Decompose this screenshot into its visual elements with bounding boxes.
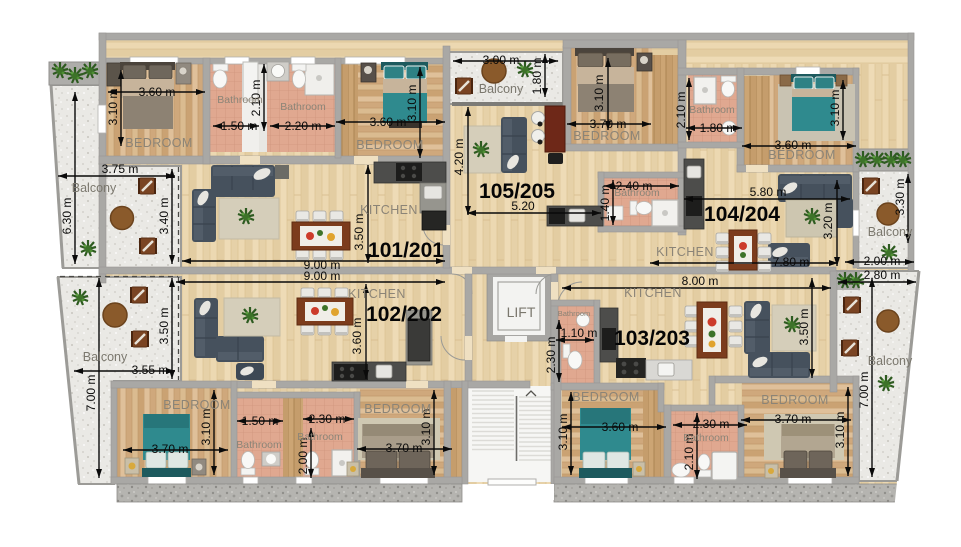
svg-text:Balcony: Balcony [479, 82, 524, 96]
svg-text:2.30 m: 2.30 m [309, 412, 346, 426]
svg-text:1.10 m: 1.10 m [561, 326, 598, 340]
svg-text:3.10 m: 3.10 m [828, 90, 842, 127]
svg-text:BEDROOM: BEDROOM [768, 148, 835, 162]
svg-text:102/202: 102/202 [366, 303, 442, 326]
svg-text:3.60 m: 3.60 m [350, 318, 364, 355]
svg-text:BEDROOM: BEDROOM [761, 393, 828, 407]
svg-text:KITCHEN: KITCHEN [360, 203, 418, 217]
svg-text:8.00 m: 8.00 m [682, 274, 719, 288]
svg-text:KITCHEN: KITCHEN [656, 245, 714, 259]
svg-text:7.00 m: 7.00 m [84, 375, 98, 412]
svg-text:1.40 m: 1.40 m [598, 185, 612, 222]
svg-text:3.50 m: 3.50 m [157, 308, 171, 345]
svg-text:3.40 m: 3.40 m [157, 198, 171, 235]
svg-text:Bathroom: Bathroom [558, 309, 591, 318]
svg-text:2.80 m: 2.80 m [864, 268, 901, 282]
svg-text:3.75 m: 3.75 m [102, 162, 139, 176]
svg-text:Balcony: Balcony [868, 225, 913, 239]
svg-text:3.10 m: 3.10 m [106, 89, 120, 126]
svg-text:104/204: 104/204 [704, 203, 780, 226]
svg-text:BEDROOM: BEDROOM [125, 136, 192, 150]
svg-text:101/201: 101/201 [368, 239, 444, 262]
svg-text:3.60 m: 3.60 m [602, 420, 639, 434]
svg-text:3.55 m: 3.55 m [132, 363, 169, 377]
svg-text:Bathroom: Bathroom [297, 431, 343, 443]
svg-text:KITCHEN: KITCHEN [624, 286, 682, 300]
svg-text:3.70 m: 3.70 m [775, 412, 812, 426]
svg-text:3.60 m: 3.60 m [139, 85, 176, 99]
svg-text:BEDROOM: BEDROOM [356, 138, 423, 152]
svg-text:BEDROOM: BEDROOM [163, 398, 230, 412]
svg-text:3.10 m: 3.10 m [199, 409, 213, 446]
svg-text:BEDROOM: BEDROOM [573, 129, 640, 143]
svg-text:105/205: 105/205 [479, 180, 555, 203]
svg-text:2.00 m: 2.00 m [864, 254, 901, 268]
svg-text:5.80 m: 5.80 m [750, 185, 787, 199]
svg-text:2.30 m: 2.30 m [693, 417, 730, 431]
svg-text:3.10 m: 3.10 m [592, 75, 606, 112]
svg-text:9.00 m: 9.00 m [304, 269, 341, 283]
svg-text:Bathroom: Bathroom [614, 187, 660, 199]
svg-text:Bathroom: Bathroom [689, 104, 735, 116]
svg-text:3.60 m: 3.60 m [370, 115, 407, 129]
svg-text:3.10 m: 3.10 m [833, 412, 847, 449]
svg-text:2.20 m: 2.20 m [285, 119, 322, 133]
svg-text:3.00 m: 3.00 m [483, 53, 520, 67]
svg-text:6.30 m: 6.30 m [60, 198, 74, 235]
svg-text:3.70 m: 3.70 m [152, 442, 189, 456]
svg-text:Balcony: Balcony [83, 350, 128, 364]
svg-text:1.50 m: 1.50 m [242, 414, 279, 428]
svg-text:2.10 m: 2.10 m [674, 92, 688, 129]
svg-text:3.50 m: 3.50 m [797, 309, 811, 346]
svg-text:BEDROOM: BEDROOM [572, 390, 639, 404]
svg-text:3.30 m: 3.30 m [893, 179, 907, 216]
svg-text:2.00 m: 2.00 m [296, 438, 310, 475]
svg-text:Bathroom: Bathroom [683, 432, 729, 444]
svg-text:Balcony: Balcony [72, 181, 117, 195]
svg-text:Bathroom: Bathroom [280, 101, 326, 113]
svg-text:3.10 m: 3.10 m [405, 85, 419, 122]
svg-text:BEDROOM: BEDROOM [364, 402, 431, 416]
svg-text:103/203: 103/203 [614, 327, 690, 350]
svg-text:1.80 m: 1.80 m [700, 121, 737, 135]
svg-text:4.20 m: 4.20 m [452, 139, 466, 176]
svg-text:3.10 m: 3.10 m [556, 414, 570, 451]
svg-text:Balcony: Balcony [868, 354, 913, 368]
svg-text:KITCHEN: KITCHEN [348, 287, 406, 301]
svg-text:3.50 m: 3.50 m [352, 214, 366, 251]
svg-text:1.80 m: 1.80 m [530, 58, 544, 95]
svg-text:7.00 m: 7.00 m [857, 372, 871, 409]
svg-text:3.70 m: 3.70 m [386, 441, 423, 455]
svg-text:1.50 m: 1.50 m [221, 119, 258, 133]
svg-text:Bathroom: Bathroom [217, 94, 263, 106]
svg-text:7.80 m: 7.80 m [773, 255, 810, 269]
svg-text:LIFT: LIFT [507, 304, 536, 320]
svg-text:2.30 m: 2.30 m [544, 337, 558, 374]
svg-text:Bathroom: Bathroom [236, 439, 282, 451]
svg-text:3.20 m: 3.20 m [821, 203, 835, 240]
